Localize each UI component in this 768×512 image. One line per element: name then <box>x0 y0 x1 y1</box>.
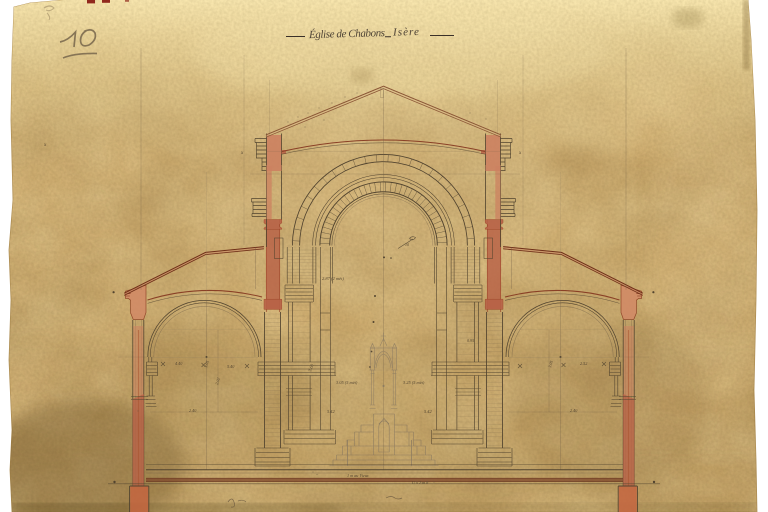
svg-text:U x 2 m h: U x 2 m h <box>412 480 428 485</box>
svg-text:Isère: Isère <box>392 26 419 39</box>
svg-text:3.25 (5 mèt): 3.25 (5 mèt) <box>403 380 425 385</box>
svg-text:5.42: 5.42 <box>424 409 432 414</box>
svg-text:4.40: 4.40 <box>175 361 183 366</box>
svg-text:5.40: 5.40 <box>227 364 235 369</box>
svg-text:2.40: 2.40 <box>570 408 578 413</box>
svg-text:2.52: 2.52 <box>580 361 587 366</box>
svg-text:2.40: 2.40 <box>189 408 197 413</box>
svg-text:0.95: 0.95 <box>467 338 474 343</box>
svg-text:3.05 (5 mèt): 3.05 (5 mèt) <box>336 380 358 385</box>
svg-text:10: 10 <box>405 242 409 247</box>
svg-text:5.42: 5.42 <box>327 409 335 414</box>
svg-text:1 m au Vieux: 1 m au Vieux <box>347 473 369 478</box>
svg-text:Église de Chabons: Église de Chabons <box>308 27 385 41</box>
svg-text:2.87 (2 mèt): 2.87 (2 mèt) <box>322 276 344 281</box>
